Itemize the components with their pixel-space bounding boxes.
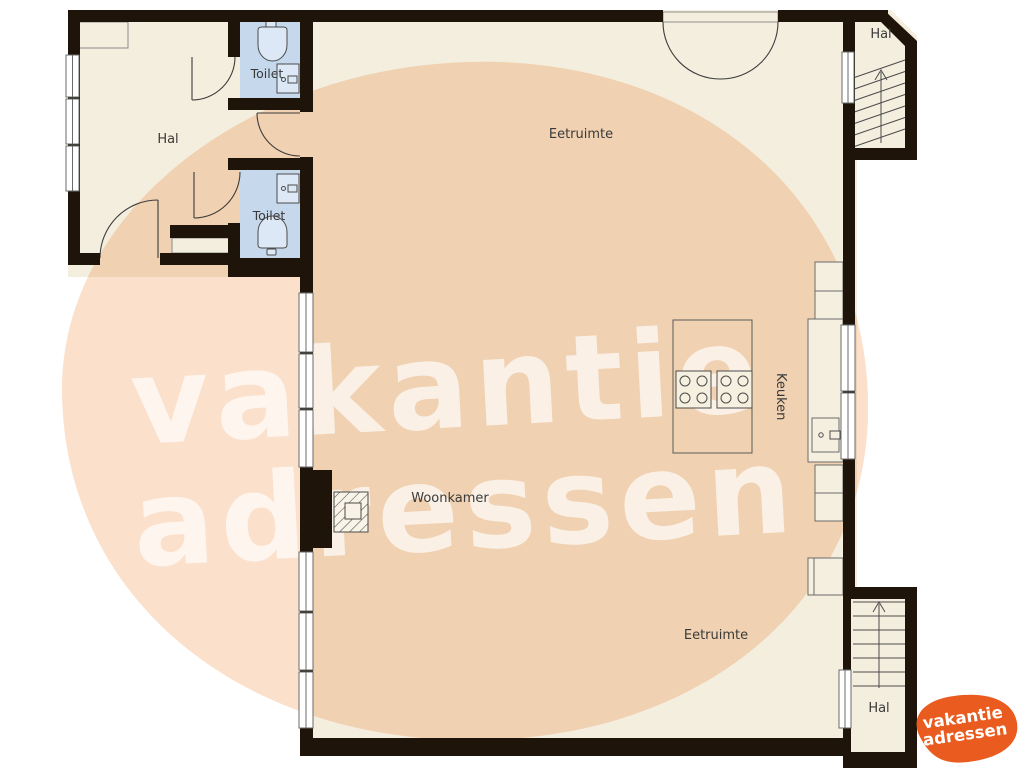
cooktop-left-icon [676,371,711,408]
vakantieadressen-logo: vakantie adressen [906,690,1022,768]
fridge-icon [808,558,843,595]
floorplan-drawing: vakantie adressen [0,0,1024,768]
cooktop-right-icon [717,371,752,408]
window [66,99,79,144]
room-label-hal-left: Hal [146,132,190,147]
watermark-text: vakantie adressen [123,300,801,595]
hall-step [172,238,236,253]
floorplan: vakantie adressen [0,0,1024,768]
window [299,354,313,408]
window [299,410,313,467]
toilet-bowl-icon [258,27,287,61]
window [841,325,855,391]
window [299,293,313,352]
fireplace [300,470,332,548]
room-label-eetruimte-bottom: Eetruimte [654,628,778,643]
room-label-keuken: Keuken [773,373,788,420]
window [66,146,79,191]
window [842,52,854,103]
stove-inner [345,503,361,519]
faucet-icon [288,185,297,192]
window [299,613,313,670]
room-label-toilet-top: Toilet [239,66,295,81]
window [839,670,851,728]
window [66,55,79,97]
room-label-toilet-bottom: Toilet [241,208,297,223]
window [299,672,313,728]
hall-closet [78,22,128,48]
room-label-hal-top-right: Hal [857,27,905,42]
room-label-hal-bottom-right: Hal [855,701,903,716]
window [841,393,855,459]
double-door-frame [663,12,778,22]
room-label-woonkamer: Woonkamer [398,491,502,506]
window [299,552,313,611]
toilet-flush-icon [267,249,276,255]
room-label-eetruimte-top: Eetruimte [519,127,643,142]
